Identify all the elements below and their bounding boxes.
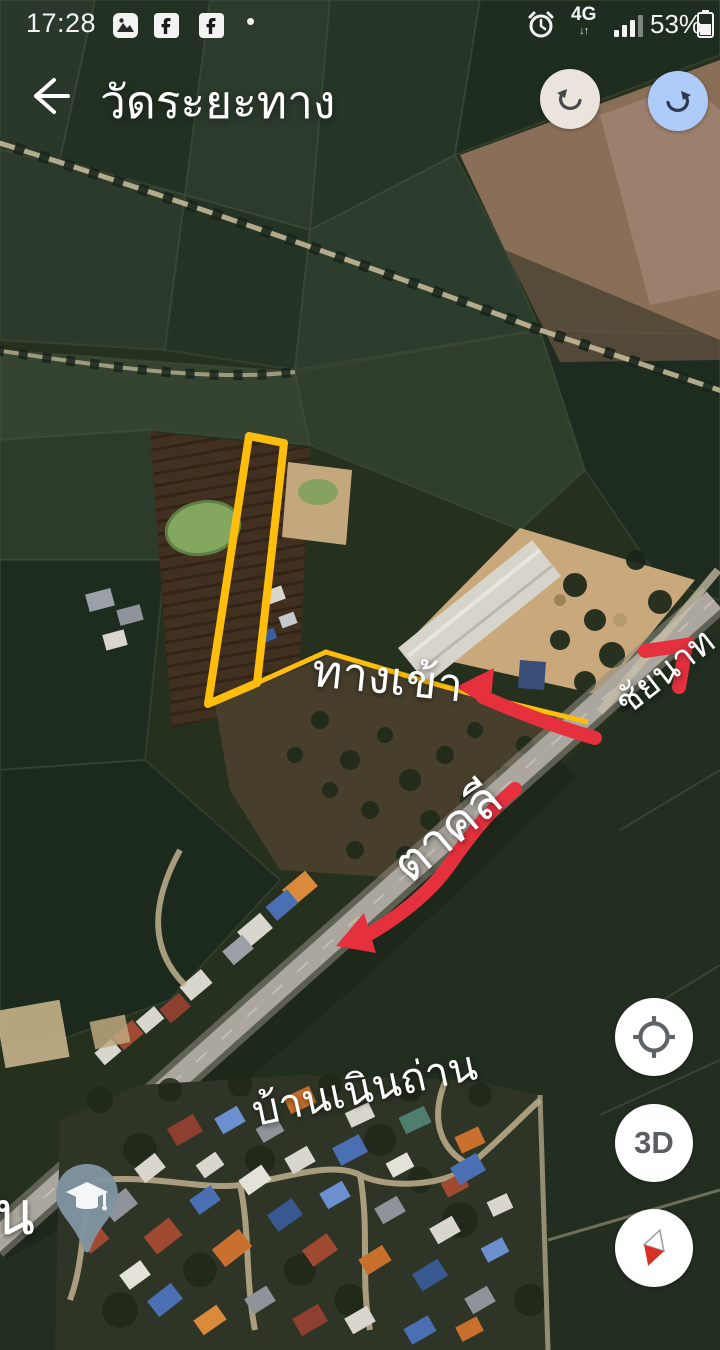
facebook-icon [153, 12, 180, 39]
gallery-icon [112, 12, 139, 39]
facebook-icon [198, 12, 225, 39]
redo-icon [661, 84, 695, 118]
compass-needle-icon [631, 1225, 677, 1271]
crosshair-icon [631, 1014, 677, 1060]
battery-percent: 53% [650, 9, 702, 40]
battery-icon [697, 10, 714, 38]
screen: 17:28 • 4G ↓↑ 53% [0, 0, 720, 1350]
status-bar: 17:28 • 4G ↓↑ 53% [0, 0, 720, 48]
undo-icon [553, 82, 587, 116]
compass-button[interactable] [615, 1209, 693, 1287]
undo-button[interactable] [540, 69, 600, 129]
redo-button[interactable] [648, 71, 708, 131]
page-title: วัดระยะทาง [100, 66, 335, 139]
clock-time: 17:28 [26, 8, 96, 39]
three-d-button[interactable]: 3D [615, 1104, 693, 1182]
back-arrow-icon[interactable] [24, 72, 72, 120]
label-entrance: ทางเข้า [308, 634, 466, 722]
education-place-pin[interactable] [52, 1162, 122, 1257]
notification-dot: • [246, 6, 255, 37]
signal-strength-icon [614, 14, 648, 38]
three-d-label: 3D [634, 1125, 674, 1161]
network-type-icon: 4G ↓↑ [571, 6, 596, 40]
data-activity-arrows: ↓↑ [571, 22, 596, 40]
alarm-icon [525, 9, 557, 41]
my-location-button[interactable] [615, 998, 693, 1076]
label-edge-partial: น [0, 1166, 35, 1261]
